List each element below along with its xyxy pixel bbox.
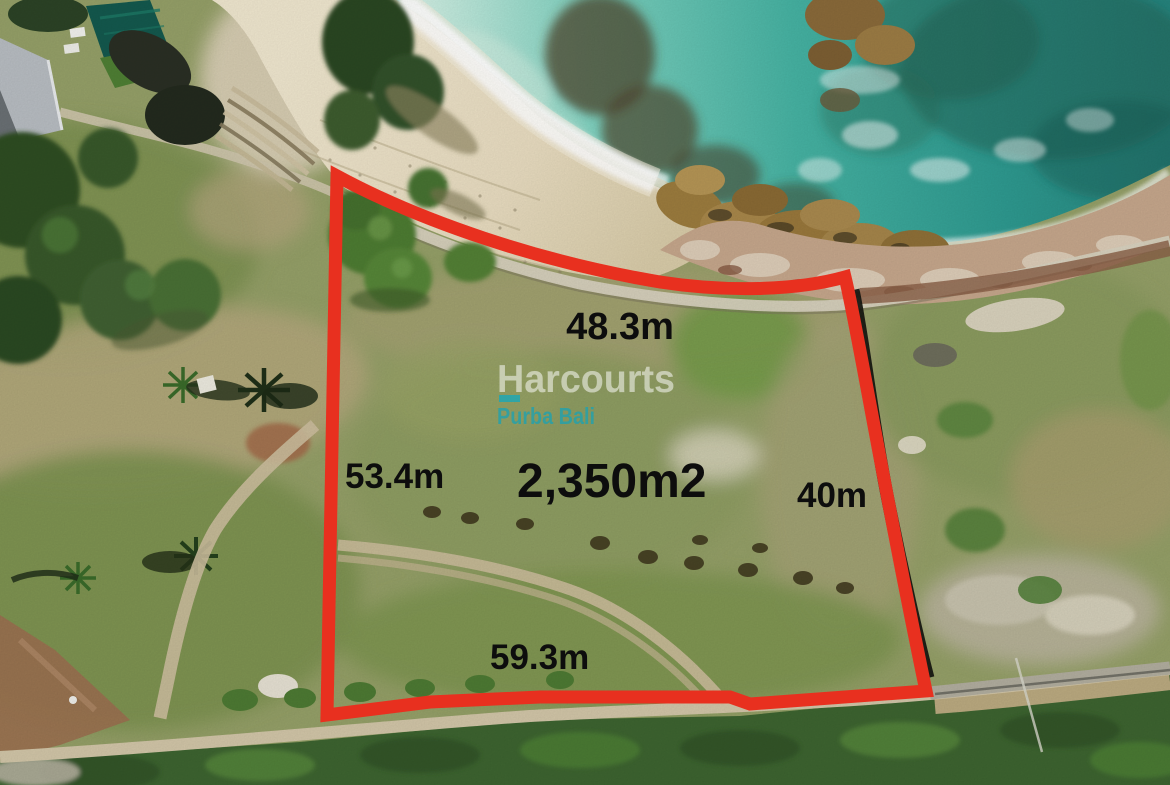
side-top-label: 48.3m bbox=[566, 306, 674, 348]
side-right-label: 40m bbox=[797, 476, 867, 515]
watermark-logo-bar bbox=[499, 395, 520, 402]
plot-area-label: 2,350m2 bbox=[517, 455, 707, 508]
watermark-office: Purba Bali bbox=[497, 403, 595, 429]
aerial-photo: Harcourts Purba Bali 48.3m 53.4m 2,350m2… bbox=[0, 0, 1170, 785]
watermark-brand: Harcourts bbox=[497, 358, 675, 401]
side-bottom-label: 59.3m bbox=[490, 638, 589, 677]
side-left-label: 53.4m bbox=[345, 457, 444, 496]
listing-photo: Harcourts Purba Bali 48.3m 53.4m 2,350m2… bbox=[0, 0, 1170, 785]
